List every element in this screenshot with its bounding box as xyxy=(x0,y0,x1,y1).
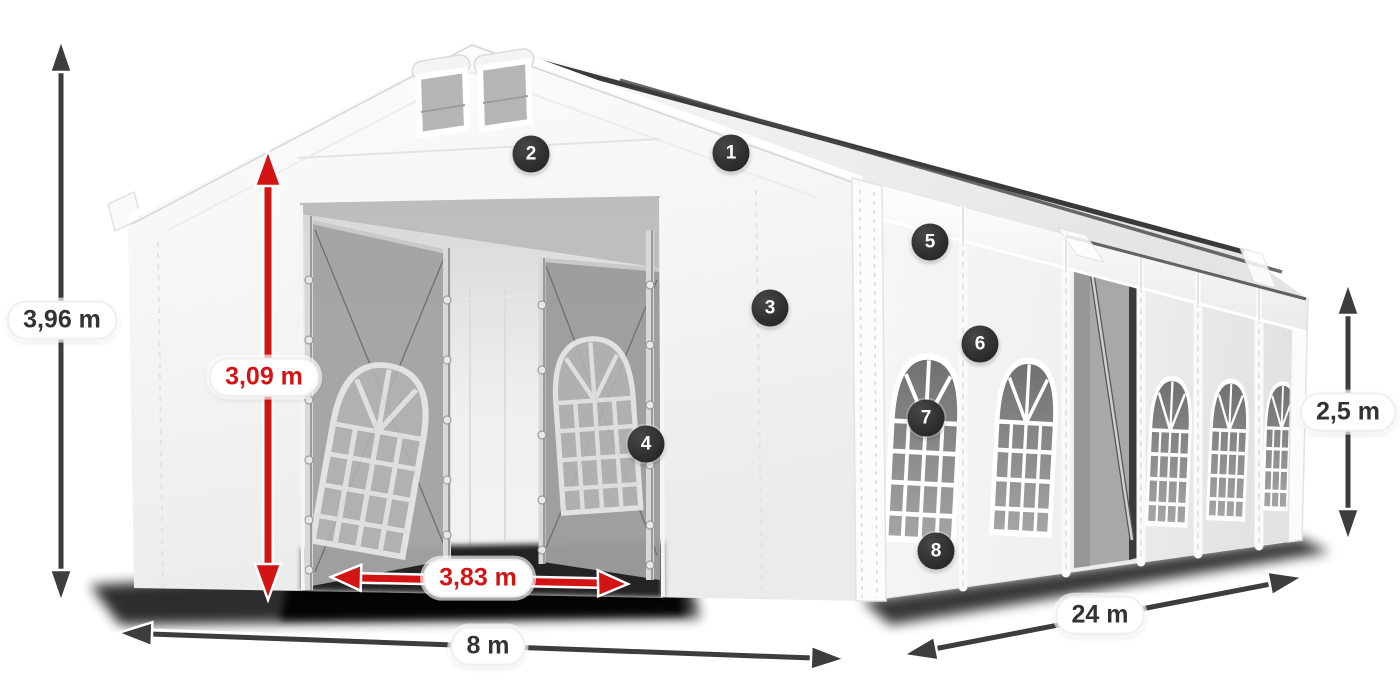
part-marker-8: 8 xyxy=(918,533,955,570)
part-marker-3: 3 xyxy=(752,290,789,327)
dimension-label-entrance-height: 3,09 m xyxy=(209,358,319,397)
dimension-label-length: 24 m xyxy=(1056,596,1145,635)
part-marker-1: 1 xyxy=(713,135,750,172)
dimension-label-side-height: 2,5 m xyxy=(1300,393,1396,432)
inner-door-left xyxy=(312,220,447,586)
inner-door-right xyxy=(543,258,660,580)
tent-illustration xyxy=(0,0,1400,700)
part-marker-4: 4 xyxy=(628,426,665,463)
front-entrance xyxy=(300,196,663,598)
part-marker-6: 6 xyxy=(962,326,999,363)
dimension-label-total-height: 3,96 m xyxy=(7,301,117,340)
part-marker-5: 5 xyxy=(912,224,949,261)
part-marker-7: 7 xyxy=(908,400,945,437)
part-marker-2: 2 xyxy=(513,136,550,173)
dimension-label-width: 8 m xyxy=(450,627,525,666)
tent-dimension-diagram: 3,96 m 3,09 m 3,83 m 8 m 24 m 2,5 m 1 2 … xyxy=(0,0,1400,700)
front-corner-trim xyxy=(852,178,886,601)
dimension-label-entrance-width: 3,83 m xyxy=(423,559,533,598)
